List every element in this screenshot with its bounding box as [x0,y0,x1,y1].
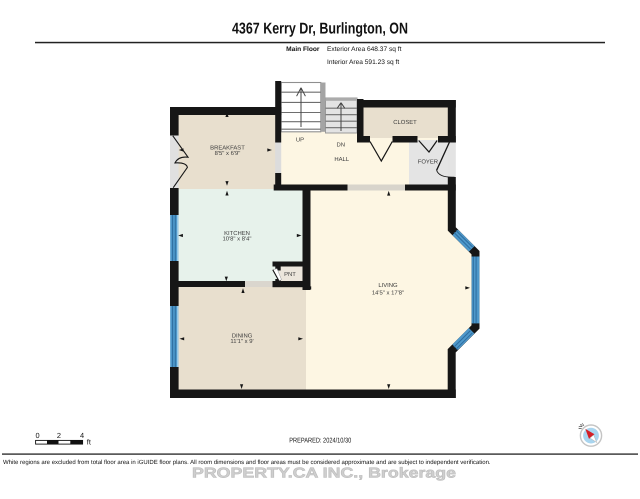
svg-text:PROPERTY.CA INC., Brokerage: PROPERTY.CA INC., Brokerage [192,465,456,481]
svg-text:0: 0 [35,431,39,440]
svg-text:11'1" x 9': 11'1" x 9' [230,338,253,345]
svg-text:DN: DN [337,142,346,149]
svg-text:2: 2 [57,431,61,440]
svg-text:Main Floor: Main Floor [286,46,320,53]
svg-text:UP: UP [296,137,304,144]
svg-text:Exterior Area 648.37 sq ft: Exterior Area 648.37 sq ft [327,46,402,53]
svg-text:4367 Kerry Dr, Burlington, ON: 4367 Kerry Dr, Burlington, ON [232,21,408,38]
svg-text:4: 4 [80,431,84,440]
svg-text:HALL: HALL [334,156,349,163]
svg-text:CLOSET: CLOSET [393,119,417,126]
svg-text:8'5" x 6'9": 8'5" x 6'9" [215,150,241,157]
svg-text:Interior Area 591.23 sq ft: Interior Area 591.23 sq ft [327,59,399,66]
svg-text:PREPARED: 2024/10/30: PREPARED: 2024/10/30 [289,436,351,444]
svg-text:14'5" x 17'8": 14'5" x 17'8" [372,289,404,296]
svg-text:ft: ft [87,437,91,446]
svg-text:FOYER: FOYER [418,159,438,166]
svg-text:10'8" x 8'4": 10'8" x 8'4" [222,235,251,242]
svg-text:PNT: PNT [284,271,296,278]
svg-text:LIVING: LIVING [378,282,398,289]
